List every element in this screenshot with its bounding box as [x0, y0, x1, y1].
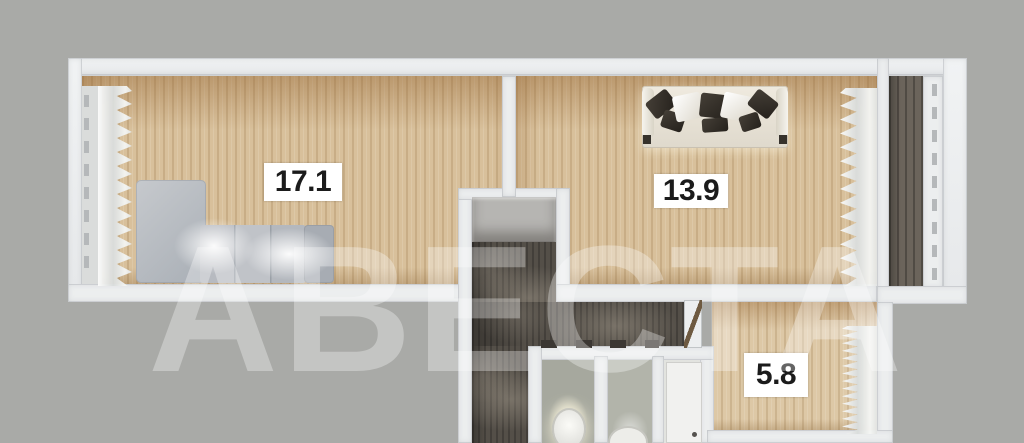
wall-left: [68, 58, 82, 302]
living-room-area-value: 17.1: [275, 165, 331, 199]
door-notch-4: [645, 340, 659, 348]
door-notch-1: [541, 340, 557, 348]
door-notch-2: [576, 340, 592, 348]
wall-bath-left: [528, 346, 542, 443]
sofa-foot-right: [779, 135, 787, 144]
area-label-kitchen: 5.8: [744, 353, 808, 397]
corner-sofa-highlight-2: [244, 228, 334, 280]
wall-kitchen-right: [877, 302, 893, 443]
balcony-window-panes: [932, 84, 937, 282]
wall-bath-divider-1: [594, 356, 608, 443]
wall-top: [68, 58, 967, 76]
wall-right-outer: [943, 58, 967, 304]
wardrobe: [472, 197, 556, 242]
living-room-curtain: [98, 86, 132, 286]
left-window-panes: [84, 95, 89, 275]
sofa-pillow-dark-4: [702, 117, 729, 133]
wall-partition-rooms: [502, 76, 516, 197]
hallway-floor-lower: [472, 346, 528, 443]
balcony-floor: [889, 76, 923, 288]
bedroom-curtain: [840, 88, 877, 286]
shower-door-handle: [692, 432, 697, 437]
sofa-armrest-right: [776, 88, 788, 138]
wall-bedroom-balcony: [877, 58, 889, 302]
wall-kitchen-left: [700, 346, 714, 443]
wall-living-bottom: [68, 284, 472, 302]
area-label-living-room: 17.1: [264, 163, 342, 201]
kitchen-curtain: [842, 326, 877, 434]
kitchen-area-value: 5.8: [756, 358, 796, 392]
kitchen-door: [684, 300, 702, 348]
floor-plan: 17.1 13.9 5.8 АВЕСТА: [0, 0, 1024, 443]
wall-bedroom-bottom: [556, 284, 877, 302]
wall-bath-top: [528, 346, 714, 360]
sofa: [642, 86, 788, 148]
toilet: [552, 408, 586, 443]
corner-sofa-highlight-1: [174, 218, 254, 274]
bedroom-area-value: 13.9: [663, 174, 719, 208]
area-label-bedroom: 13.9: [654, 174, 728, 208]
wall-hall-left: [458, 188, 472, 443]
wall-bath-divider-2: [652, 356, 664, 443]
door-notch-3: [610, 340, 626, 348]
sofa-foot-left: [643, 135, 651, 144]
shower-door: [666, 362, 702, 443]
